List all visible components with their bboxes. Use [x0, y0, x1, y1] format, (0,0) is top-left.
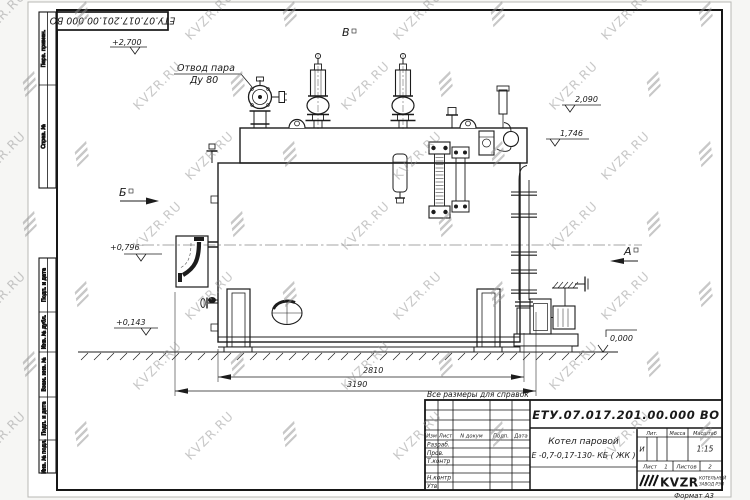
tb-role-tkontr: Т.контр [427, 459, 451, 465]
kvzr-logo-text: KVZR [660, 476, 699, 490]
margin-label-podp-data-2: Подп. и дата [42, 401, 48, 435]
tb-role-razrab: Разраб. [427, 442, 450, 448]
tb-listov-value: 2 [708, 465, 712, 471]
tb-list-value: 1 [664, 465, 668, 471]
tb-listov-label: Листов [675, 465, 697, 471]
tb-role-utv: Утв. [427, 484, 439, 490]
margin-label-inv-podl: Инв. № подл. [42, 439, 48, 474]
tb-header-ndokum: N докум [460, 434, 482, 440]
elevation-0143-label: +0,143 [116, 318, 146, 327]
margin-label-perv-primen: Перв. примен. [41, 29, 47, 67]
tb-header-masshtab: Масштаб [693, 431, 717, 437]
steam-outlet-label-2: Ду 80 [189, 75, 218, 86]
tb-header-list: Лист [438, 434, 453, 440]
steam-outlet-label-1: Отвод пара [177, 63, 235, 74]
manhole [272, 301, 302, 324]
title-block: ЕТУ.07.017.201.00.000 ВО Изм Лист N доку… [425, 400, 727, 500]
tb-header-izm: Изм [426, 434, 437, 440]
reference-note: Все размеры для справок [427, 390, 529, 399]
margin-label-inv-dubl: Инв. № дубл. [42, 314, 48, 349]
elevation-0000-label: 0,000 [610, 334, 633, 343]
view-marker-b-label: Б [119, 186, 127, 199]
dimension-3190-label: 3190 [347, 380, 367, 389]
kvzr-logo-sub2: ЗАВОД РЭП [699, 482, 725, 487]
margin-label-sprav-no: Справ. № [41, 124, 47, 149]
view-marker-a-label: А [623, 245, 632, 258]
tb-lit-value: И [639, 446, 645, 454]
tb-scale-value: 1:15 [697, 445, 714, 454]
tb-header-massa: Масса [670, 431, 686, 437]
tb-role-prov: Пров. [427, 451, 444, 457]
elevation-2700-label: +2,700 [112, 38, 142, 47]
product-name-line1: Котел паровой [548, 437, 619, 447]
tb-role-nkontr: Н.контр [427, 476, 451, 482]
tb-header-lit: Лит. [645, 431, 658, 437]
kvzr-logo-sub1: КОТЕЛЬНЫЙ [699, 476, 727, 481]
drawing-page: ЕТУ.07.017.201.00.000 ВО Перв. примен. С… [0, 0, 750, 500]
view-marker-v-label: В [342, 26, 350, 39]
title-doc-number: ЕТУ.07.017.201.00.000 ВО [532, 408, 719, 422]
tb-list-label: Лист [642, 465, 658, 471]
boiler-drawing-sheet: ЕТУ.07.017.201.00.000 ВО Перв. примен. С… [0, 0, 750, 500]
tb-header-data: Дата [513, 434, 527, 440]
elevation-2090-label: 2,090 [575, 95, 598, 104]
dimension-2810-label: 2810 [363, 366, 383, 375]
elevation-0796-label: +0,796 [110, 243, 140, 252]
top-doc-number-rotated: ЕТУ.07.017.201.00.000 ВО [50, 15, 176, 26]
margin-label-vzam-inv: Взам. инв. № [42, 357, 48, 392]
product-name-line2: Е -0,7-0,17-130- КБ ( ЖК ) [531, 451, 635, 460]
margin-label-podp-data-1: Подп. и дата [42, 268, 48, 302]
elevation-1746-label: 1,746 [560, 129, 583, 138]
format-label: Формат А3 [674, 492, 714, 500]
tb-header-podp: Подп. [493, 434, 509, 440]
